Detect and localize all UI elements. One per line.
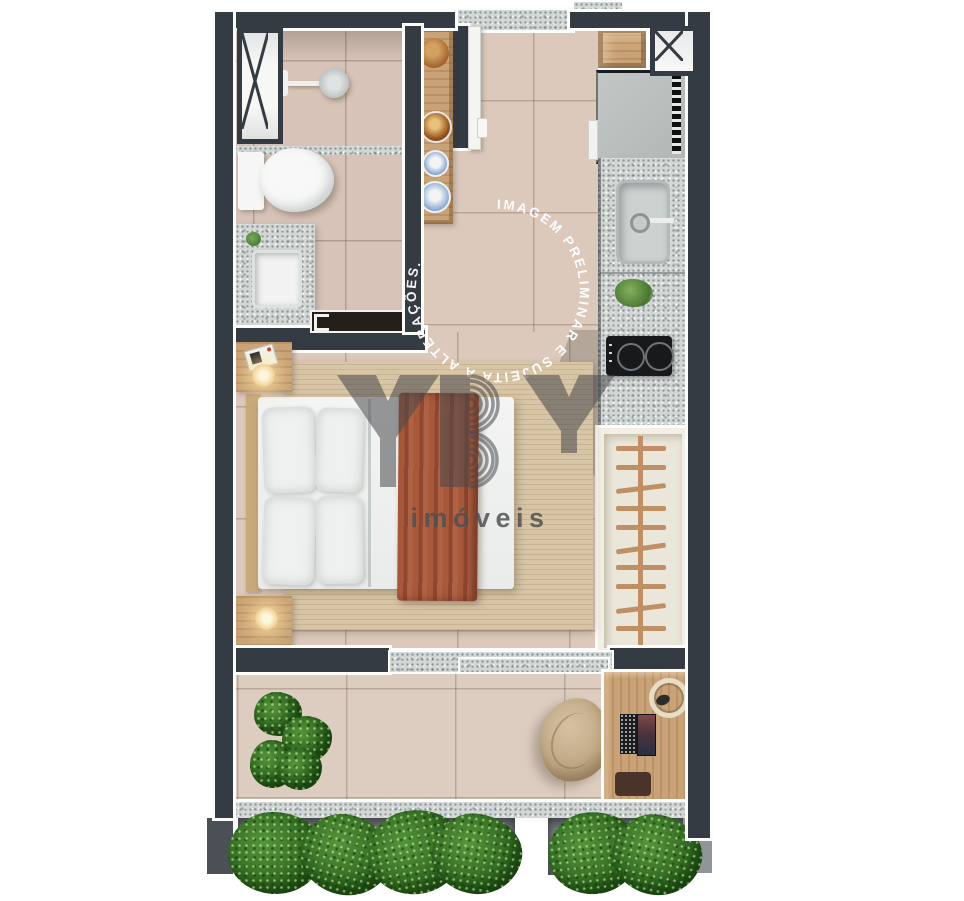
logo-tagline: imóveis (410, 503, 549, 533)
logo-yby: imóveis (337, 375, 615, 533)
logo-letter-b-arcs (470, 376, 498, 487)
floor-plan-canvas: IMAGEM PRELIMINAR E SUJEITA A ALTERAÇÕES… (0, 0, 964, 901)
watermark-layer: IMAGEM PRELIMINAR E SUJEITA A ALTERAÇÕES… (0, 0, 964, 901)
logo-letter-b-bar (440, 375, 470, 487)
logo-letter-y (523, 375, 615, 453)
logo-letter-y (337, 375, 439, 487)
watermark-circle-text: IMAGEM PRELIMINAR E SUJEITA A ALTERAÇÕES… (404, 197, 592, 385)
